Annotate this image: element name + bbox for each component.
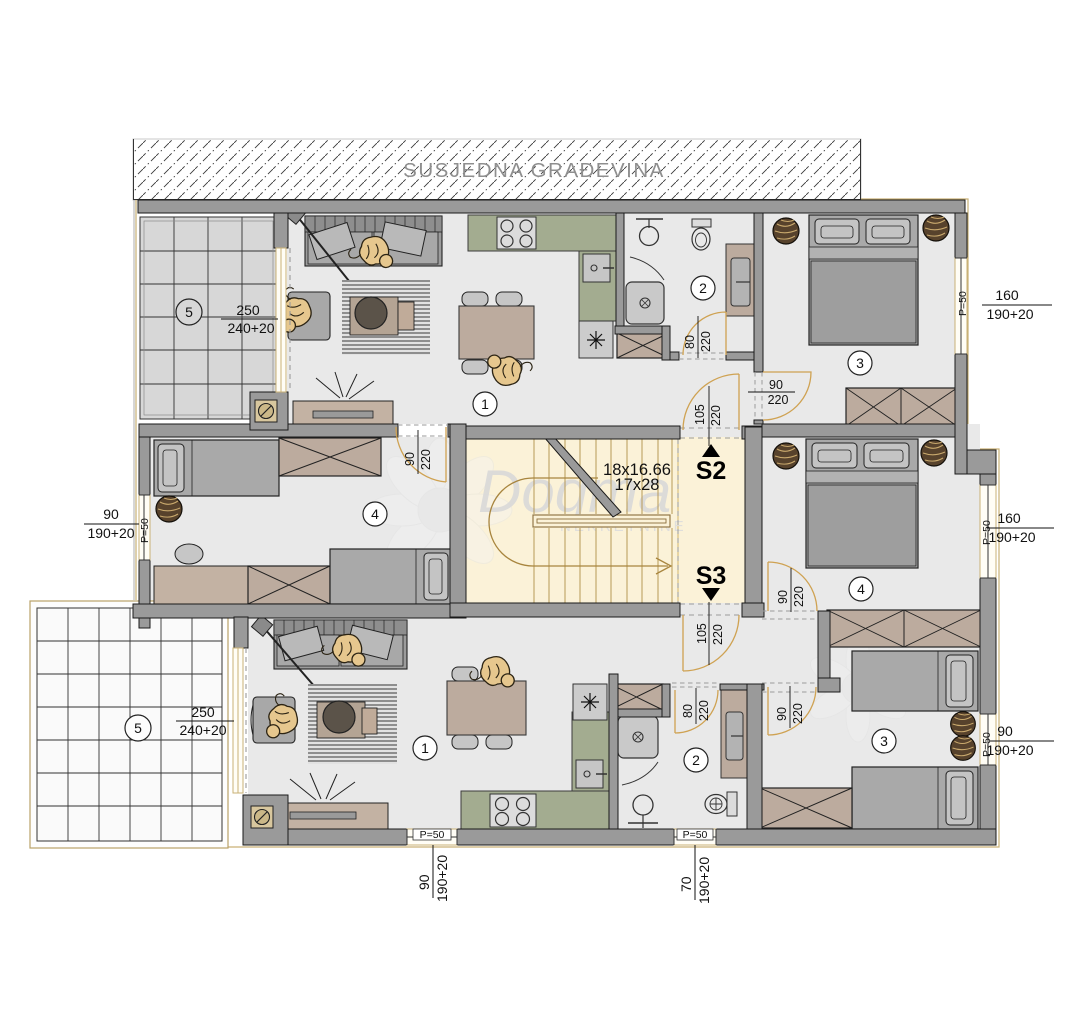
svg-text:2: 2	[699, 280, 707, 296]
svg-text:90: 90	[403, 452, 417, 466]
svg-text:SUSJEDNA GRAĐEVINA: SUSJEDNA GRAĐEVINA	[403, 159, 665, 182]
svg-text:220: 220	[792, 586, 806, 607]
svg-text:1: 1	[481, 396, 489, 412]
svg-text:105: 105	[693, 404, 707, 425]
svg-text:220: 220	[711, 624, 725, 645]
svg-text:2: 2	[692, 752, 700, 768]
svg-text:P=50: P=50	[981, 520, 993, 545]
svg-text:90: 90	[769, 378, 783, 392]
svg-text:17x28: 17x28	[615, 476, 660, 494]
svg-text:P=50: P=50	[981, 732, 993, 757]
svg-text:190+20: 190+20	[986, 306, 1033, 322]
svg-text:240+20: 240+20	[227, 320, 274, 336]
svg-text:P=50: P=50	[420, 829, 445, 841]
svg-text:190+20: 190+20	[434, 855, 450, 902]
svg-text:220: 220	[709, 405, 723, 426]
svg-text:P=50: P=50	[139, 518, 151, 543]
svg-text:P=50: P=50	[683, 829, 708, 841]
svg-text:3: 3	[880, 733, 888, 749]
svg-text:250: 250	[236, 302, 260, 318]
svg-text:90: 90	[775, 707, 789, 721]
svg-text:3: 3	[856, 355, 864, 371]
svg-text:S3: S3	[696, 562, 727, 590]
svg-text:4: 4	[857, 581, 865, 597]
svg-text:220: 220	[697, 700, 711, 721]
svg-text:250: 250	[191, 704, 215, 720]
svg-text:90: 90	[776, 590, 790, 604]
svg-text:160: 160	[997, 510, 1021, 526]
svg-text:5: 5	[134, 720, 142, 736]
svg-text:220: 220	[699, 331, 713, 352]
svg-text:105: 105	[695, 623, 709, 644]
svg-text:220: 220	[791, 703, 805, 724]
svg-text:80: 80	[683, 335, 697, 349]
svg-text:70: 70	[678, 876, 694, 892]
svg-text:4: 4	[371, 506, 379, 522]
svg-text:240+20: 240+20	[179, 722, 226, 738]
svg-text:190+20: 190+20	[988, 529, 1035, 545]
svg-text:190+20: 190+20	[87, 525, 134, 541]
svg-text:90: 90	[997, 723, 1013, 739]
svg-text:S2: S2	[696, 457, 727, 485]
svg-text:160: 160	[995, 287, 1019, 303]
svg-text:1: 1	[421, 740, 429, 756]
svg-text:80: 80	[681, 704, 695, 718]
svg-text:90: 90	[416, 874, 432, 890]
svg-text:190+20: 190+20	[986, 742, 1033, 758]
svg-text:5: 5	[185, 304, 193, 320]
svg-text:P=50: P=50	[957, 291, 969, 316]
svg-text:220: 220	[768, 393, 789, 407]
svg-text:90: 90	[103, 506, 119, 522]
svg-text:190+20: 190+20	[696, 857, 712, 904]
svg-text:220: 220	[419, 449, 433, 470]
